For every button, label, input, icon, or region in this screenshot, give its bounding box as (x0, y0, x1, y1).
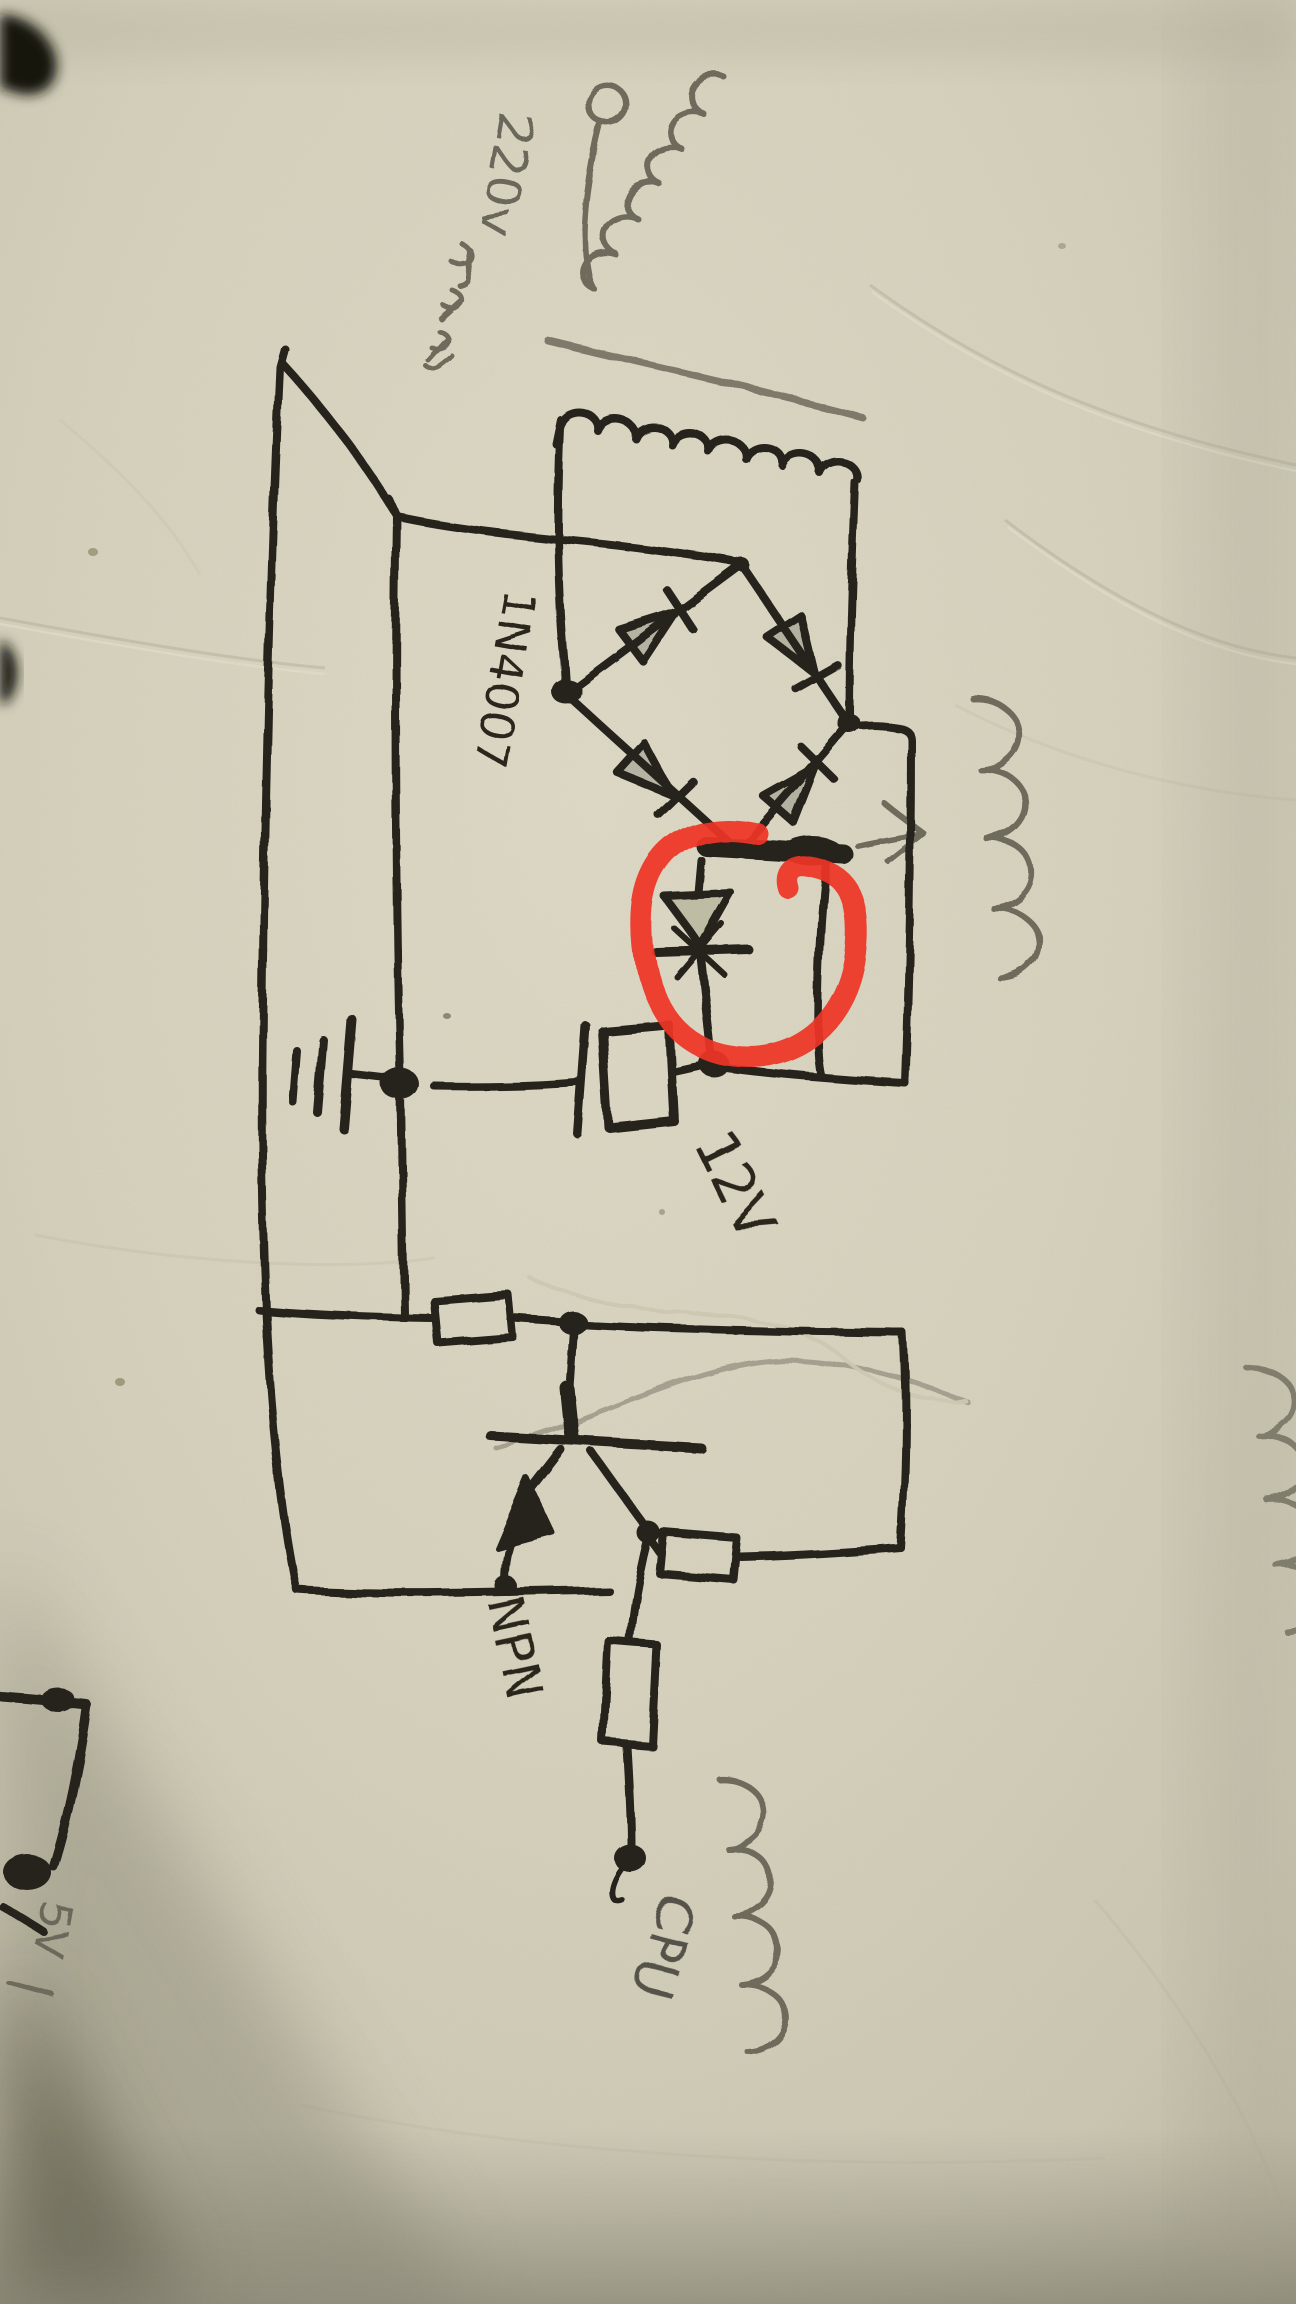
junction-dot (733, 557, 749, 571)
photo-of-hand-drawn-circuit: 220v CPU 5V (0, 0, 1296, 2304)
junction-dot (495, 1576, 517, 1596)
wire-bottom-rail (297, 1590, 608, 1593)
circuit-sketch-canvas: 220v CPU 5V (0, 0, 1296, 2304)
edge-voltage-label: 5V (21, 1896, 81, 1962)
junction-dot (838, 713, 860, 733)
junction-dot (552, 679, 582, 705)
wire-base-mid (513, 1319, 559, 1322)
junction-dot (381, 1068, 419, 1100)
wire-feedback-riser (901, 1333, 905, 1548)
wire-r4-bottom (627, 1747, 631, 1844)
